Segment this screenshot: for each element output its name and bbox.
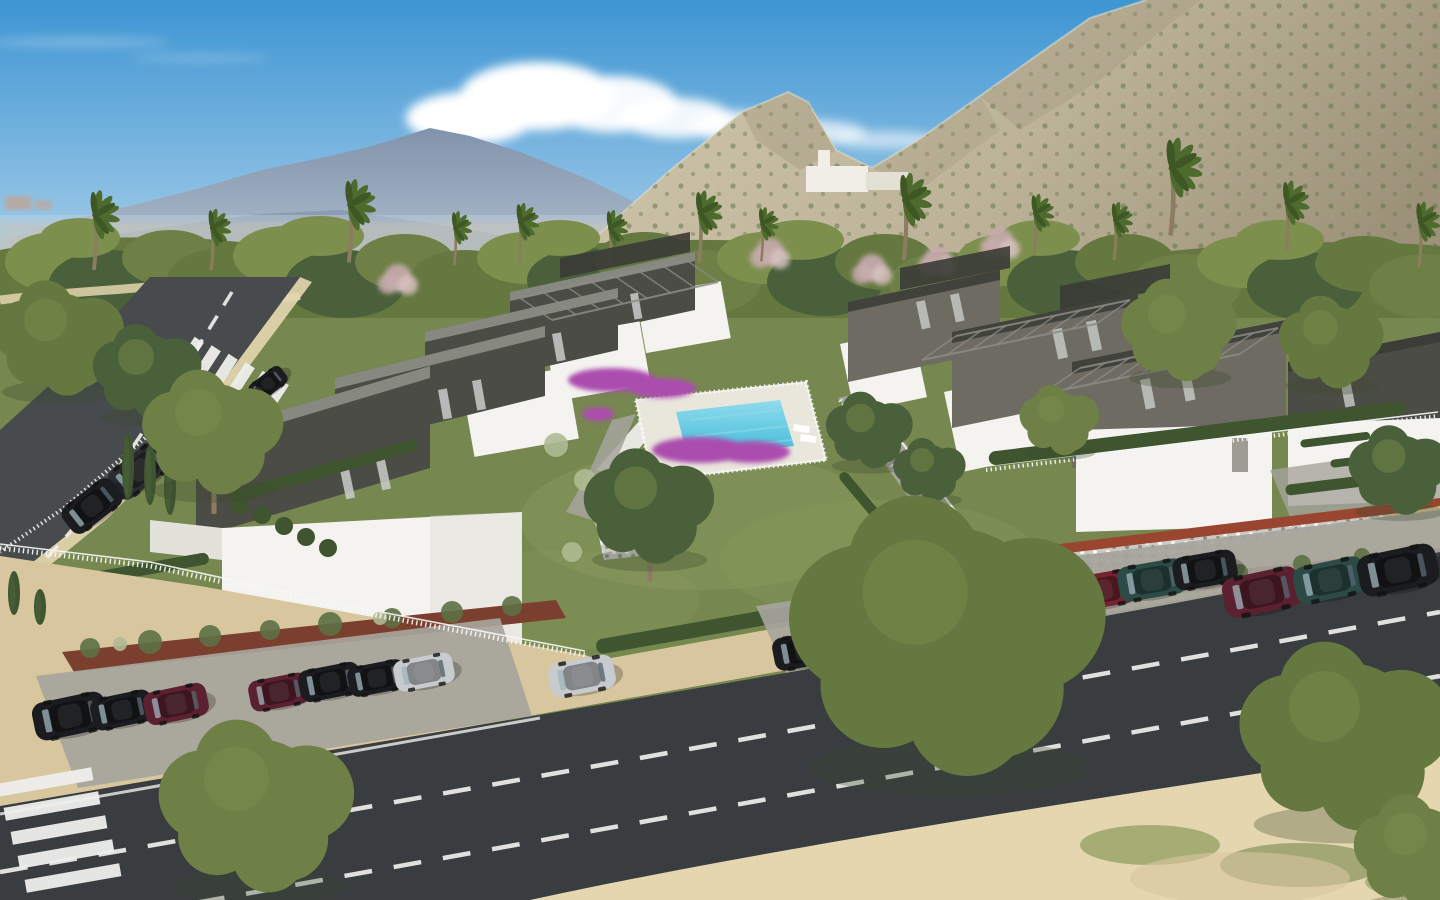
scenery-shape — [1148, 295, 1186, 333]
scenery-shape — [910, 448, 934, 472]
scenery-shape — [863, 540, 968, 645]
shrub — [562, 542, 582, 562]
scenery-shape — [750, 248, 770, 268]
cypress-tree — [122, 432, 134, 500]
shrub — [113, 637, 127, 651]
scenery-shape — [398, 275, 418, 295]
scenery-shape — [1165, 338, 1209, 382]
scenery-shape — [1038, 396, 1064, 422]
scenery-shape — [858, 436, 891, 469]
scenery-shape — [146, 449, 152, 501]
scenery-shape — [908, 657, 1027, 776]
scenery-shape — [118, 339, 154, 375]
scenery-shape — [1169, 165, 1176, 172]
shrub — [138, 630, 162, 654]
scenery-shape — [1113, 218, 1117, 222]
scenery-shape — [10, 575, 16, 611]
treeline-canopy — [1236, 220, 1324, 260]
scenery-shape — [1418, 220, 1423, 225]
scenery-shape — [34, 200, 52, 210]
scenery-shape — [698, 211, 703, 216]
cypress-tree — [34, 589, 46, 625]
shrub — [318, 612, 342, 636]
shrub — [544, 433, 568, 457]
scenery-shape — [24, 298, 67, 341]
scenery-shape — [210, 226, 214, 230]
scenery-shape — [806, 166, 868, 192]
scenery-shape — [1033, 211, 1037, 215]
scenery-shape — [608, 226, 612, 230]
scenery-shape — [1289, 671, 1360, 742]
scenery-shape — [1049, 425, 1079, 455]
scenery-shape — [1303, 310, 1338, 345]
scenery-shape — [347, 202, 353, 208]
cloud — [130, 53, 270, 63]
scenery-shape — [846, 404, 875, 433]
scenery-shape — [1285, 201, 1290, 206]
scenery-shape — [253, 506, 271, 524]
scenery-shape — [1318, 349, 1357, 388]
scenery-shape — [195, 441, 248, 494]
scenery-shape — [43, 347, 92, 396]
scene-canvas — [0, 0, 1440, 900]
villa-development-render — [0, 0, 1440, 900]
scenery-shape — [1139, 568, 1164, 593]
shrub — [260, 620, 280, 640]
scenery-shape — [175, 389, 222, 436]
shrub — [80, 638, 100, 658]
scenery-shape — [614, 466, 657, 509]
scenery-shape — [818, 150, 830, 168]
scenery-shape — [1372, 439, 1406, 473]
scenery-shape — [453, 226, 457, 230]
scenery-shape — [297, 528, 315, 546]
scenery-shape — [628, 378, 696, 398]
scenery-shape — [582, 407, 614, 421]
scenery-shape — [633, 515, 682, 564]
cypress-tree — [144, 445, 156, 505]
cypress-tree — [8, 571, 20, 615]
scenery-shape — [760, 222, 764, 226]
scenery-shape — [378, 274, 398, 294]
shrub — [199, 625, 221, 647]
scenery-shape — [275, 517, 293, 535]
scenery-shape — [124, 436, 130, 496]
scenery-shape — [872, 265, 892, 285]
scenery-shape — [852, 264, 872, 284]
scenery-shape — [1387, 477, 1425, 515]
scenery-shape — [518, 220, 522, 224]
shrub — [502, 596, 522, 616]
scenery-shape — [319, 539, 337, 557]
scenery-shape — [1193, 558, 1217, 581]
scenery-shape — [770, 249, 790, 269]
scenery-shape — [232, 819, 305, 892]
scenery-shape — [204, 747, 269, 812]
door — [1232, 438, 1248, 472]
scenery-shape — [714, 441, 790, 463]
scenery-shape — [1384, 812, 1427, 855]
scenery-shape — [5, 196, 31, 210]
scenery-shape — [902, 197, 908, 203]
scenery-shape — [92, 212, 98, 218]
shrub — [441, 601, 463, 623]
scenery-shape — [36, 593, 42, 621]
